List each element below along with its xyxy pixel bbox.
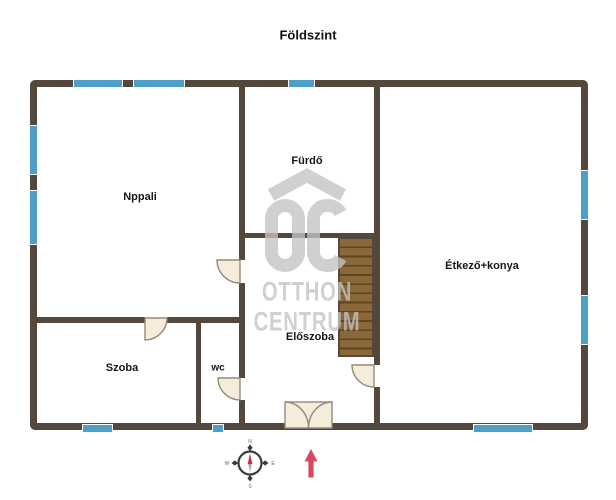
compass-circle [239,452,262,475]
window-marker [580,295,589,345]
compass-label-n: N [248,439,252,445]
wall-segment [167,317,240,323]
window-marker [288,79,315,88]
room-label-wc: wc [211,363,224,374]
room-label-etkezo-konya: Étkező+konya [445,260,519,272]
staircase [338,237,374,357]
wall-segment [374,387,380,430]
compass-label-w: W [225,461,230,467]
compass-tick-e [262,460,269,465]
room-label-nppali: Nppali [123,191,157,203]
window-marker [29,125,38,175]
compass-tick-s [247,475,252,482]
window-marker [473,424,533,433]
wall-segment [196,320,201,425]
window-marker [212,424,224,433]
compass-label-e: E [271,461,275,467]
wall-segment [239,400,245,430]
room-label-furdo: Fürdő [291,155,322,167]
room-label-szoba: Szoba [106,362,138,374]
window-marker [73,79,123,88]
compass-tick-w [232,460,239,465]
wall-segment [374,80,380,365]
window-marker [82,424,113,433]
compass-needle-north [248,454,253,465]
wall-segment [33,317,145,323]
compass-label-s: S [248,484,252,490]
window-marker [29,190,38,245]
compass-tick-n [247,445,252,452]
room-label-eloszoba: Előszoba [286,331,334,343]
wall-segment [239,283,245,378]
outer-wall [30,80,588,430]
window-marker [580,170,589,220]
north-arrow-icon [305,449,318,478]
compass-needle-south [248,464,252,473]
floor-title: Földszint [279,28,336,43]
compass-rose: N S W E [225,439,276,490]
window-marker [133,79,185,88]
floor-plan: Földszint [0,0,616,500]
